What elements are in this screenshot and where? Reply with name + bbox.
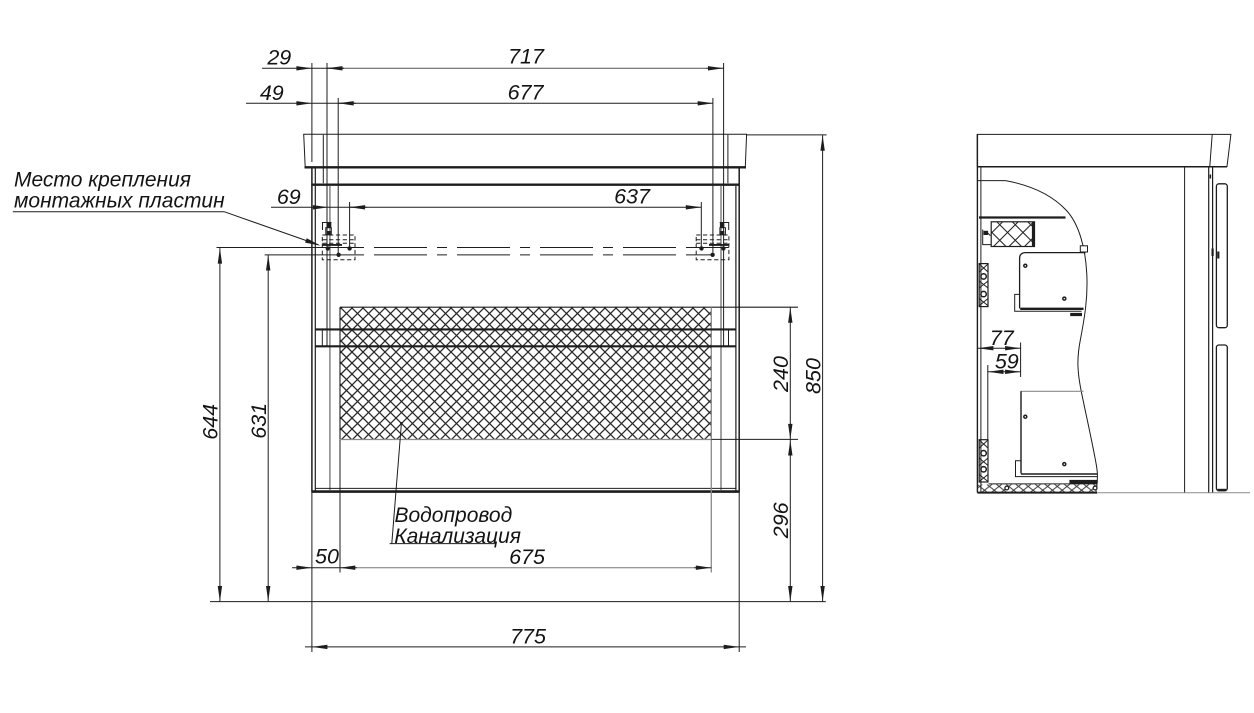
svg-text:монтажных пластин: монтажных пластин <box>14 189 225 212</box>
svg-text:850: 850 <box>801 358 825 394</box>
svg-text:677: 677 <box>508 80 545 104</box>
svg-text:637: 637 <box>614 185 651 209</box>
svg-text:675: 675 <box>509 545 546 569</box>
svg-text:Водопровод: Водопровод <box>395 504 513 527</box>
svg-text:29: 29 <box>266 46 291 70</box>
svg-text:Место крепления: Место крепления <box>14 169 191 192</box>
svg-text:59: 59 <box>995 349 1019 373</box>
svg-text:775: 775 <box>510 624 547 648</box>
svg-text:69: 69 <box>277 185 301 209</box>
svg-text:50: 50 <box>315 545 339 569</box>
svg-text:631: 631 <box>247 403 271 439</box>
svg-text:240: 240 <box>769 356 793 393</box>
svg-text:Канализация: Канализация <box>394 525 521 548</box>
svg-text:77: 77 <box>990 326 1015 350</box>
svg-text:49: 49 <box>260 81 284 105</box>
svg-text:717: 717 <box>508 45 545 69</box>
svg-text:644: 644 <box>199 404 223 440</box>
svg-text:296: 296 <box>769 502 793 539</box>
